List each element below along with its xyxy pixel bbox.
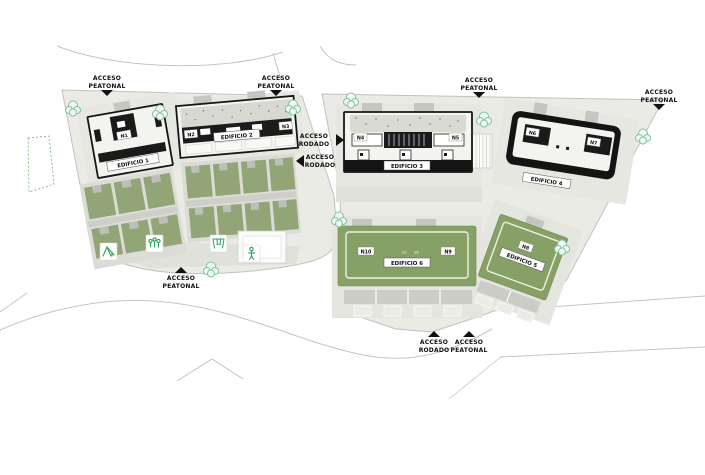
access-text: ACCESO <box>420 339 448 346</box>
access-text: ACCESO <box>262 75 290 82</box>
access-text: ACCESO <box>455 339 483 346</box>
access-text: ACCESO <box>645 89 673 96</box>
unit-label: N2 <box>187 132 195 139</box>
private-gardens-building1 <box>79 168 187 269</box>
unit-label: N5 <box>452 135 459 141</box>
unit-label: N4 <box>357 135 365 141</box>
access-text: ACCESO <box>167 275 195 282</box>
access-label-top-mid-right: ACCESO PEATONAL <box>461 77 498 98</box>
site-plan-drawing: N1 EDIFICIO 1 N2 N3 EDIFICIO 2 <box>0 0 705 475</box>
reserved-plot-outline <box>28 136 54 192</box>
access-label-bottom-road: ACCESO RODADO <box>419 331 450 354</box>
access-text: ACCESO <box>300 133 328 140</box>
unit-label: N7 <box>590 140 598 147</box>
unit-label: N9 <box>444 249 452 255</box>
access-text: ACCESO <box>93 75 121 82</box>
access-text: PEATONAL <box>89 83 126 90</box>
unit-label: N3 <box>282 124 290 131</box>
building-edificio-6: N10 N9 EDIFICIO 6 <box>338 219 476 316</box>
access-text: PEATONAL <box>451 347 488 354</box>
people-icon <box>146 235 163 252</box>
private-gardens-building2 <box>181 153 302 243</box>
access-text: PEATONAL <box>163 283 200 290</box>
access-text: RODADO <box>299 141 330 148</box>
building-name-label: EDIFICIO 3 <box>391 164 423 170</box>
building-name-label: EDIFICIO 6 <box>391 261 423 267</box>
person-icon <box>243 245 260 262</box>
access-text: PEATONAL <box>641 97 678 104</box>
access-text: ACCESO <box>465 77 493 84</box>
building-edificio-3: N4 N5 EDIFICIO 3 <box>344 103 472 172</box>
site-plan-page: N1 EDIFICIO 1 N2 N3 EDIFICIO 2 <box>0 0 705 475</box>
access-text: ACCESO <box>306 154 334 161</box>
playground-icon <box>100 243 117 260</box>
swing-icon <box>210 235 227 252</box>
access-arrow-icon <box>463 331 475 337</box>
access-text: RODADO <box>419 347 450 354</box>
access-text: PEATONAL <box>461 85 498 92</box>
access-text: RODADO <box>305 162 336 169</box>
unit-label: N1 <box>120 133 128 140</box>
unit-label: N10 <box>361 249 372 255</box>
access-text: PEATONAL <box>258 83 295 90</box>
